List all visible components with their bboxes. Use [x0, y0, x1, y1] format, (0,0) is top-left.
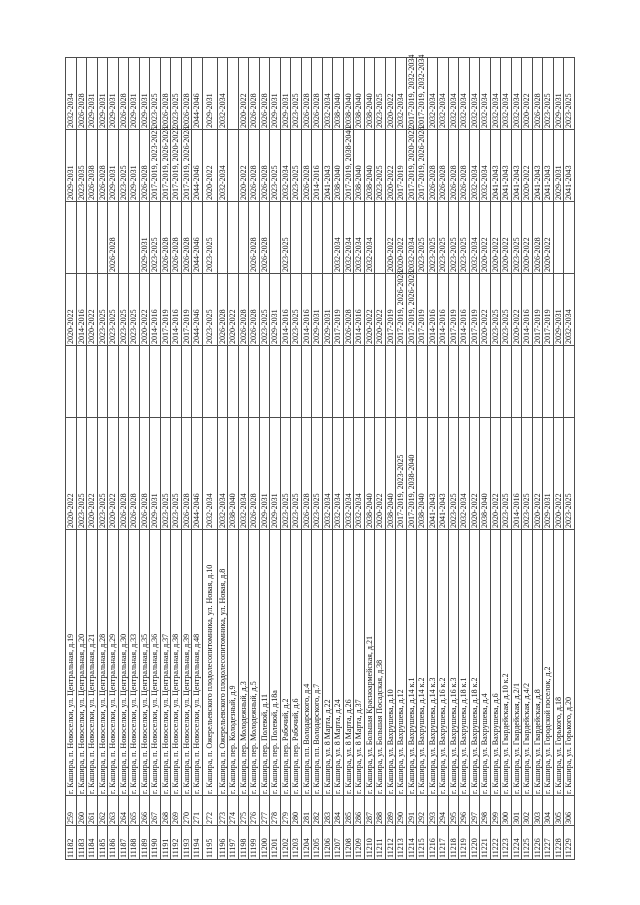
period-6-cell: 2026-2028: [118, 58, 129, 130]
period-6-cell: 2032-2034: [448, 58, 459, 130]
period-1-cell: 2038-2040: [480, 418, 491, 530]
period-5-cell: 2017-2019, 2026-2028: [417, 130, 428, 202]
period-6-cell: 2026-2028: [259, 58, 270, 130]
table-row: 11215292г. Кашира, ул. Вахрушева, д.14 к…: [417, 58, 428, 860]
row-ordinal-cell: 302: [522, 796, 533, 826]
period-2-cell: [97, 346, 108, 418]
period-3-cell: 2029-2031: [312, 274, 323, 346]
period-5-cell: 2029-2031: [108, 130, 119, 202]
period-6-cell: 2026-2028: [76, 58, 87, 130]
period-1-cell: 2017-2019, 2023-2025: [396, 418, 407, 530]
period-4-cell: [97, 202, 108, 274]
period-6-cell: 2032-2034: [438, 58, 449, 130]
period-4-cell: [129, 202, 140, 274]
table-row: 11212289г. Кашира, ул. Вахрушева, д.1020…: [385, 58, 396, 860]
period-5-cell: 2026-2028: [249, 130, 260, 202]
row-ordinal-cell: 306: [564, 796, 575, 826]
period-6-cell: 2026-2028: [181, 58, 192, 130]
period-4-cell: [301, 202, 312, 274]
period-4-cell: 2026-2028: [160, 202, 171, 274]
period-3-cell: 2023-2025: [129, 274, 140, 346]
period-4-cell: 2020-2022: [385, 202, 396, 274]
row-id-cell: 11195: [202, 826, 217, 860]
period-5-cell: 2032-2034: [469, 130, 480, 202]
row-id-cell: 11219: [459, 826, 470, 860]
period-1-cell: 2020-2022: [469, 418, 480, 530]
address-cell: г. Кашира, ул. Вахрушева, д.16 к.2: [438, 530, 449, 796]
table-row: 11226303г. Кашира, ул. Гвардейская, д.82…: [532, 58, 543, 860]
period-3-cell: 2023-2025: [202, 274, 217, 346]
period-1-cell: 2023-2025: [312, 418, 323, 530]
address-cell: г. Кашира, ул. Вахрушева, д.18 к.1: [459, 530, 470, 796]
period-1-cell: 2023-2025: [97, 418, 108, 530]
row-ordinal-cell: 289: [385, 796, 396, 826]
row-ordinal-cell: 287: [364, 796, 375, 826]
period-2-cell: [228, 346, 239, 418]
period-6-cell: 2020-2022: [238, 58, 249, 130]
table-row: 11219296г. Кашира, ул. Вахрушева, д.18 к…: [459, 58, 470, 860]
row-id-cell: 11229: [564, 826, 575, 860]
period-2-cell: [501, 346, 512, 418]
period-1-cell: 2032-2034: [202, 418, 217, 530]
row-id-cell: 11183: [76, 826, 87, 860]
period-1-cell: 2020-2022: [87, 418, 98, 530]
row-ordinal-cell: 296: [459, 796, 470, 826]
period-6-cell: 2029-2031: [270, 58, 281, 130]
row-ordinal-cell: 293: [427, 796, 438, 826]
table-row: 11223300г. Кашира, ул. Гвардейская, д.10…: [501, 58, 512, 860]
period-6-cell: 2023-2025: [543, 58, 554, 130]
period-5-cell: 2017-2019, 2038-2040: [343, 130, 354, 202]
address-cell: г. Кашира, ул. Гвардейская, д.10 к.2: [501, 530, 512, 796]
table-row: 11193270г. Кашира, п. Новоселки, ул. Цен…: [181, 58, 192, 860]
period-5-cell: 2014-2016: [312, 130, 323, 202]
period-1-cell: 2032-2034: [238, 418, 249, 530]
table-row: 11198275г. Кашира, пер. Молодежный, д.32…: [238, 58, 249, 860]
period-2-cell: [202, 346, 217, 418]
period-2-cell: [217, 346, 228, 418]
period-4-cell: 2020-2022: [543, 202, 554, 274]
address-cell: г. Кашира, ул. Гвардейская, д.4/2: [522, 530, 533, 796]
row-ordinal-cell: 273: [217, 796, 228, 826]
table-row: 11220297г. Кашира, ул. Вахрушева, д.18 к…: [469, 58, 480, 860]
period-3-cell: 2017-2019: [417, 274, 428, 346]
address-cell: г. Кашира, ул. Большая Красноармейская, …: [364, 530, 375, 796]
period-1-cell: 2017-2019, 2038-2040: [406, 418, 417, 530]
table-row: 11184261г. Кашира, п. Новоселки, ул. Цен…: [87, 58, 98, 860]
row-id-cell: 11215: [417, 826, 428, 860]
period-4-cell: 2044-2046: [192, 202, 203, 274]
period-4-cell: 2020-2022: [522, 202, 533, 274]
period-1-cell: 2038-2040: [364, 418, 375, 530]
table-row: 11200277г. Кашира, пер. Полевой, д.11202…: [259, 58, 270, 860]
row-id-cell: 11201: [270, 826, 281, 860]
address-cell: г. Кашира, пер. Молодежный, д.3: [238, 530, 249, 796]
table-row: 11229306г. Кашира, ул. Горького, д.20202…: [564, 58, 575, 860]
period-2-cell: [301, 346, 312, 418]
period-3-cell: 2029-2031: [322, 274, 333, 346]
address-cell: г. Кашира, п. Новоселки, ул. Центральная…: [171, 530, 182, 796]
period-3-cell: 2014-2016: [76, 274, 87, 346]
period-5-cell: 2017-2019, 2020-2022: [406, 130, 417, 202]
period-3-cell: 2026-2028: [238, 274, 249, 346]
row-ordinal-cell: 272: [202, 796, 217, 826]
period-6-cell: 2032-2034: [459, 58, 470, 130]
period-2-cell: [564, 346, 575, 418]
period-1-cell: 2014-2016: [511, 418, 522, 530]
period-1-cell: 2044-2046: [192, 418, 203, 530]
address-cell: г. Кашира, пер. Молодежный, д.5: [249, 530, 260, 796]
period-6-cell: 2032-2034: [396, 58, 407, 130]
row-ordinal-cell: 278: [270, 796, 281, 826]
row-id-cell: 11186: [108, 826, 119, 860]
period-1-cell: 2032-2034: [354, 418, 365, 530]
row-ordinal-cell: 304: [543, 796, 554, 826]
row-ordinal-cell: 295: [448, 796, 459, 826]
table-row: 11221298г. Кашира, ул. Вахрушева, д.4203…: [480, 58, 491, 860]
address-cell: г. Кашира, ул. Горького, д.18: [553, 530, 564, 796]
table-row: 11210287г. Кашира, ул. Большая Красноарм…: [364, 58, 375, 860]
row-id-cell: 11211: [375, 826, 386, 860]
row-id-cell: 11213: [396, 826, 407, 860]
row-ordinal-cell: 288: [375, 796, 386, 826]
period-6-cell: 2029-2031: [139, 58, 150, 130]
address-cell: г. Кашира, ул. Вахрушева, д.18 к.2: [469, 530, 480, 796]
period-1-cell: 2023-2025: [564, 418, 575, 530]
period-6-cell: 2032-2034: [480, 58, 491, 130]
period-6-cell: 2032-2034: [490, 58, 501, 130]
period-2-cell: [522, 346, 533, 418]
address-cell: г. Кашира, п. Новоселки, ул. Центральная…: [192, 530, 203, 796]
address-cell: г. Кашира, п. Новоселки, ул. Центральная…: [108, 530, 119, 796]
period-1-cell: 2023-2025: [160, 418, 171, 530]
period-1-cell: 2032-2034: [217, 418, 228, 530]
period-1-cell: 2023-2025: [171, 418, 182, 530]
period-4-cell: 2032-2034: [469, 202, 480, 274]
period-5-cell: 2023-2025: [375, 130, 386, 202]
table-row: 11195272г. Кашира, п. Ожерельевского пло…: [202, 58, 217, 860]
period-3-cell: 2020-2022: [228, 274, 239, 346]
row-id-cell: 11207: [333, 826, 344, 860]
period-5-cell: 2032-2034: [217, 130, 228, 202]
table-row: 11187264г. Кашира, п. Новоселки, ул. Цен…: [118, 58, 129, 860]
period-6-cell: 2032-2034: [66, 58, 77, 130]
period-1-cell: 2020-2022: [490, 418, 501, 530]
row-ordinal-cell: 281: [301, 796, 312, 826]
period-1-cell: 2020-2022: [375, 418, 386, 530]
address-cell: г. Кашира, ул. 8 Марта, д.24: [333, 530, 344, 796]
period-6-cell: 2032-2034: [511, 58, 522, 130]
period-5-cell: 2044-2046: [192, 130, 203, 202]
period-4-cell: [76, 202, 87, 274]
period-5-cell: 2041-2043: [543, 130, 554, 202]
period-4-cell: 2023-2025: [448, 202, 459, 274]
table-row: 11207284г. Кашира, ул. 8 Марта, д.242032…: [333, 58, 344, 860]
row-id-cell: 11203: [291, 826, 302, 860]
row-ordinal-cell: 305: [553, 796, 564, 826]
row-id-cell: 11184: [87, 826, 98, 860]
row-id-cell: 11225: [522, 826, 533, 860]
row-id-cell: 11205: [312, 826, 323, 860]
period-3-cell: 2026-2028: [249, 274, 260, 346]
address-cell: г. Кашира, пл. Володарского, д.4: [301, 530, 312, 796]
row-ordinal-cell: 266: [139, 796, 150, 826]
period-2-cell: [192, 346, 203, 418]
period-1-cell: 2026-2028: [301, 418, 312, 530]
period-2-cell: [280, 346, 291, 418]
period-6-cell: 2029-2031: [108, 58, 119, 130]
period-5-cell: 2017-2019: [396, 130, 407, 202]
period-4-cell: 2023-2025: [202, 202, 217, 274]
row-ordinal-cell: 271: [192, 796, 203, 826]
row-ordinal-cell: 270: [181, 796, 192, 826]
period-2-cell: [343, 346, 354, 418]
row-ordinal-cell: 261: [87, 796, 98, 826]
period-1-cell: 2029-2031: [259, 418, 270, 530]
table-row: 11205282г. Кашира, пл. Володарского, д.7…: [312, 58, 323, 860]
period-4-cell: 2029-2031: [139, 202, 150, 274]
period-6-cell: 2032-2034: [469, 58, 480, 130]
period-3-cell: 2020-2022: [511, 274, 522, 346]
address-cell: г. Кашира, п. Новоселки, ул. Центральная…: [97, 530, 108, 796]
period-5-cell: 2020-2022: [522, 130, 533, 202]
table-row: 11197274г. Кашира, пер. Колодезный, д.92…: [228, 58, 239, 860]
address-cell: г. Кашира, ул. Вахрушева, д.14 к.3: [427, 530, 438, 796]
period-6-cell: 2023-2025: [564, 58, 575, 130]
period-6-cell: 2023-2025: [150, 58, 161, 130]
table-row: 11214291г. Кашира, ул. Вахрушева, д.14 к…: [406, 58, 417, 860]
period-3-cell: 2026-2028: [343, 274, 354, 346]
row-ordinal-cell: 299: [490, 796, 501, 826]
address-cell: г. Кашира, ул. 8 Марта, д.26: [343, 530, 354, 796]
row-id-cell: 11189: [139, 826, 150, 860]
period-5-cell: 2026-2038: [87, 130, 98, 202]
period-4-cell: 2023-2025: [150, 202, 161, 274]
period-6-cell: 2026-2028: [160, 58, 171, 130]
period-6-cell: 2026-2028: [301, 58, 312, 130]
row-id-cell: 11190: [150, 826, 161, 860]
period-1-cell: 2038-2040: [228, 418, 239, 530]
period-4-cell: [312, 202, 323, 274]
row-ordinal-cell: 263: [108, 796, 119, 826]
period-3-cell: 2017-2019: [385, 274, 396, 346]
period-1-cell: 2020-2022: [532, 418, 543, 530]
row-ordinal-cell: 259: [66, 796, 77, 826]
period-3-cell: 2017-2019: [469, 274, 480, 346]
period-5-cell: 2026-2028: [97, 130, 108, 202]
row-id-cell: 11224: [511, 826, 522, 860]
period-2-cell: [396, 346, 407, 418]
period-4-cell: [66, 202, 77, 274]
period-1-cell: 2026-2028: [181, 418, 192, 530]
address-cell: г. Кашира, ул. Вахрушева, д.14 к.2: [417, 530, 428, 796]
row-id-cell: 11227: [543, 826, 554, 860]
period-4-cell: 2026-2028: [532, 202, 543, 274]
row-id-cell: 11187: [118, 826, 129, 860]
period-5-cell: 2026-2028: [139, 130, 150, 202]
period-4-cell: 2032-2034: [354, 202, 365, 274]
period-6-cell: 2038-2040: [364, 58, 375, 130]
row-id-cell: 11212: [385, 826, 396, 860]
period-6-cell: 2023-2025: [171, 58, 182, 130]
address-cell: г. Кашира, п. Новоселки, ул. Центральная…: [66, 530, 77, 796]
period-6-cell: 2044-2046: [192, 58, 203, 130]
period-6-cell: 2032-2034: [501, 58, 512, 130]
period-5-cell: 2041-2043: [511, 130, 522, 202]
row-id-cell: 11188: [129, 826, 140, 860]
row-ordinal-cell: 290: [396, 796, 407, 826]
table-body: 11182259г. Кашира, п. Новоселки, ул. Цен…: [66, 58, 575, 860]
period-5-cell: 2029-2031: [553, 130, 564, 202]
period-3-cell: 2023-2025: [118, 274, 129, 346]
period-3-cell: 2014-2016: [301, 274, 312, 346]
period-2-cell: [385, 346, 396, 418]
address-cell: г. Кашира, п. Ожерельевского плодолесопи…: [202, 530, 217, 796]
row-ordinal-cell: 285: [343, 796, 354, 826]
table-row: 11217294г. Кашира, ул. Вахрушева, д.16 к…: [438, 58, 449, 860]
row-ordinal-cell: 283: [322, 796, 333, 826]
period-2-cell: [249, 346, 260, 418]
address-cell: г. Кашира, п. Новоселки, ул. Центральная…: [87, 530, 98, 796]
row-ordinal-cell: 294: [438, 796, 449, 826]
period-5-cell: 2041-2043: [490, 130, 501, 202]
period-1-cell: 2023-2025: [291, 418, 302, 530]
address-cell: г. Кашира, п. Новоселки, ул. Центральная…: [139, 530, 150, 796]
period-4-cell: 2032-2034: [364, 202, 375, 274]
period-6-cell: 2020-2022: [522, 58, 533, 130]
row-id-cell: 11202: [280, 826, 291, 860]
period-5-cell: 2041-2043: [564, 130, 575, 202]
row-ordinal-cell: 265: [129, 796, 140, 826]
address-cell: г. Кашира, ул. Гвардейская, д.8: [532, 530, 543, 796]
table-row: 11186263г. Кашира, п. Новоселки, ул. Цен…: [108, 58, 119, 860]
period-3-cell: 2017-2019, 2026-2028: [406, 274, 417, 346]
period-4-cell: [270, 202, 281, 274]
address-cell: г. Кашира, п. Новоселки, ул. Центральная…: [160, 530, 171, 796]
row-ordinal-cell: 269: [171, 796, 182, 826]
period-3-cell: 2014-2016: [438, 274, 449, 346]
period-3-cell: 2014-2016: [427, 274, 438, 346]
row-ordinal-cell: 284: [333, 796, 344, 826]
period-6-cell: 2029-2031: [129, 58, 140, 130]
table-row: 11190267г. Кашира, п. Новоселки, ул. Цен…: [150, 58, 161, 860]
period-2-cell: [511, 346, 522, 418]
table-row: 11206283г. Кашира, ул. 8 Марта, д.222032…: [322, 58, 333, 860]
period-1-cell: 2026-2028: [249, 418, 260, 530]
period-6-cell: 2032-2034: [322, 58, 333, 130]
table-row: 11192269г. Кашира, п. Новоселки, ул. Цен…: [171, 58, 182, 860]
table-row: 11199276г. Кашира, пер. Молодежный, д.52…: [249, 58, 260, 860]
period-6-cell: 2029-2031: [202, 58, 217, 130]
period-2-cell: [375, 346, 386, 418]
row-id-cell: 11220: [469, 826, 480, 860]
period-5-cell: 2026-2028: [459, 130, 470, 202]
table-row: 11182259г. Кашира, п. Новоселки, ул. Цен…: [66, 58, 77, 860]
repair-schedule-table: 11182259г. Кашира, п. Новоселки, ул. Цен…: [65, 57, 575, 860]
period-2-cell: [129, 346, 140, 418]
row-ordinal-cell: 267: [150, 796, 161, 826]
row-ordinal-cell: 298: [480, 796, 491, 826]
address-cell: г. Кашира, ул. 8 Марта, д.37: [354, 530, 365, 796]
period-6-cell: 2023-2025: [291, 58, 302, 130]
period-1-cell: 2023-2025: [280, 418, 291, 530]
address-cell: г. Кашира, ул. Вахрушева, д.14 к.1: [406, 530, 417, 796]
row-id-cell: 11218: [448, 826, 459, 860]
period-2-cell: [438, 346, 449, 418]
period-4-cell: [118, 202, 129, 274]
period-3-cell: 2017-2019: [333, 274, 344, 346]
period-4-cell: 2020-2022: [480, 202, 491, 274]
row-ordinal-cell: 274: [228, 796, 239, 826]
period-6-cell: 2032-2034: [217, 58, 228, 130]
address-cell: г. Кашира, ул. Горького, д.20: [564, 530, 575, 796]
period-2-cell: [270, 346, 281, 418]
period-3-cell: 2017-2019, 2026-2028: [396, 274, 407, 346]
period-5-cell: 2026-2028: [427, 130, 438, 202]
period-2-cell: [532, 346, 543, 418]
row-id-cell: 11206: [322, 826, 333, 860]
period-4-cell: [238, 202, 249, 274]
period-1-cell: 2023-2025: [448, 418, 459, 530]
row-id-cell: 11222: [490, 826, 501, 860]
period-5-cell: 2029-2031: [66, 130, 77, 202]
row-id-cell: 11197: [228, 826, 239, 860]
period-3-cell: 2014-2016: [150, 274, 161, 346]
row-id-cell: 11217: [438, 826, 449, 860]
period-2-cell: [259, 346, 270, 418]
period-3-cell: 2014-2016: [522, 274, 533, 346]
address-cell: г. Кашира, п. Новоселки, ул. Центральная…: [129, 530, 140, 796]
period-4-cell: 2032-2034: [406, 202, 417, 274]
address-cell: г. Кашира, ул. Вахрушева, д.12: [396, 530, 407, 796]
address-cell: г. Кашира, ул. Вахрушева, д.10: [385, 530, 396, 796]
period-2-cell: [108, 346, 119, 418]
period-2-cell: [459, 346, 470, 418]
row-ordinal-cell: 300: [501, 796, 512, 826]
period-6-cell: 2032-2034: [427, 58, 438, 130]
table-row: 11225302г. Кашира, ул. Гвардейская, д.4/…: [522, 58, 533, 860]
row-id-cell: 11193: [181, 826, 192, 860]
period-4-cell: [228, 202, 239, 274]
document-page: 11182259г. Кашира, п. Новоселки, ул. Цен…: [0, 0, 640, 905]
row-id-cell: 11210: [364, 826, 375, 860]
period-2-cell: [553, 346, 564, 418]
period-5-cell: 2041-2043: [501, 130, 512, 202]
period-4-cell: 2026-2028: [181, 202, 192, 274]
address-cell: г. Кашира, ул. 8 Марта, д.22: [322, 530, 333, 796]
period-4-cell: [322, 202, 333, 274]
period-6-cell: 2023-2025: [375, 58, 386, 130]
row-ordinal-cell: 282: [312, 796, 323, 826]
table-row: 11211288г. Кашира, ул. Большая Посадская…: [375, 58, 386, 860]
row-ordinal-cell: 280: [291, 796, 302, 826]
address-cell: г. Кашира, пер. Колодезный, д.9: [228, 530, 239, 796]
period-3-cell: 2014-2016: [280, 274, 291, 346]
period-1-cell: 2029-2031: [543, 418, 554, 530]
table-row: 11222299г. Кашира, ул. Вахрушева, д.6202…: [490, 58, 501, 860]
period-2-cell: [469, 346, 480, 418]
period-2-cell: [139, 346, 150, 418]
period-3-cell: 2020-2022: [87, 274, 98, 346]
period-1-cell: 2023-2025: [76, 418, 87, 530]
row-id-cell: 11208: [343, 826, 354, 860]
period-1-cell: 2023-2025: [522, 418, 533, 530]
period-4-cell: 2032-2034: [343, 202, 354, 274]
period-2-cell: [160, 346, 171, 418]
period-4-cell: 2026-2028: [259, 202, 270, 274]
rotated-table-container: 11182259г. Кашира, п. Новоселки, ул. Цен…: [65, 58, 573, 860]
period-3-cell: 2017-2019: [543, 274, 554, 346]
